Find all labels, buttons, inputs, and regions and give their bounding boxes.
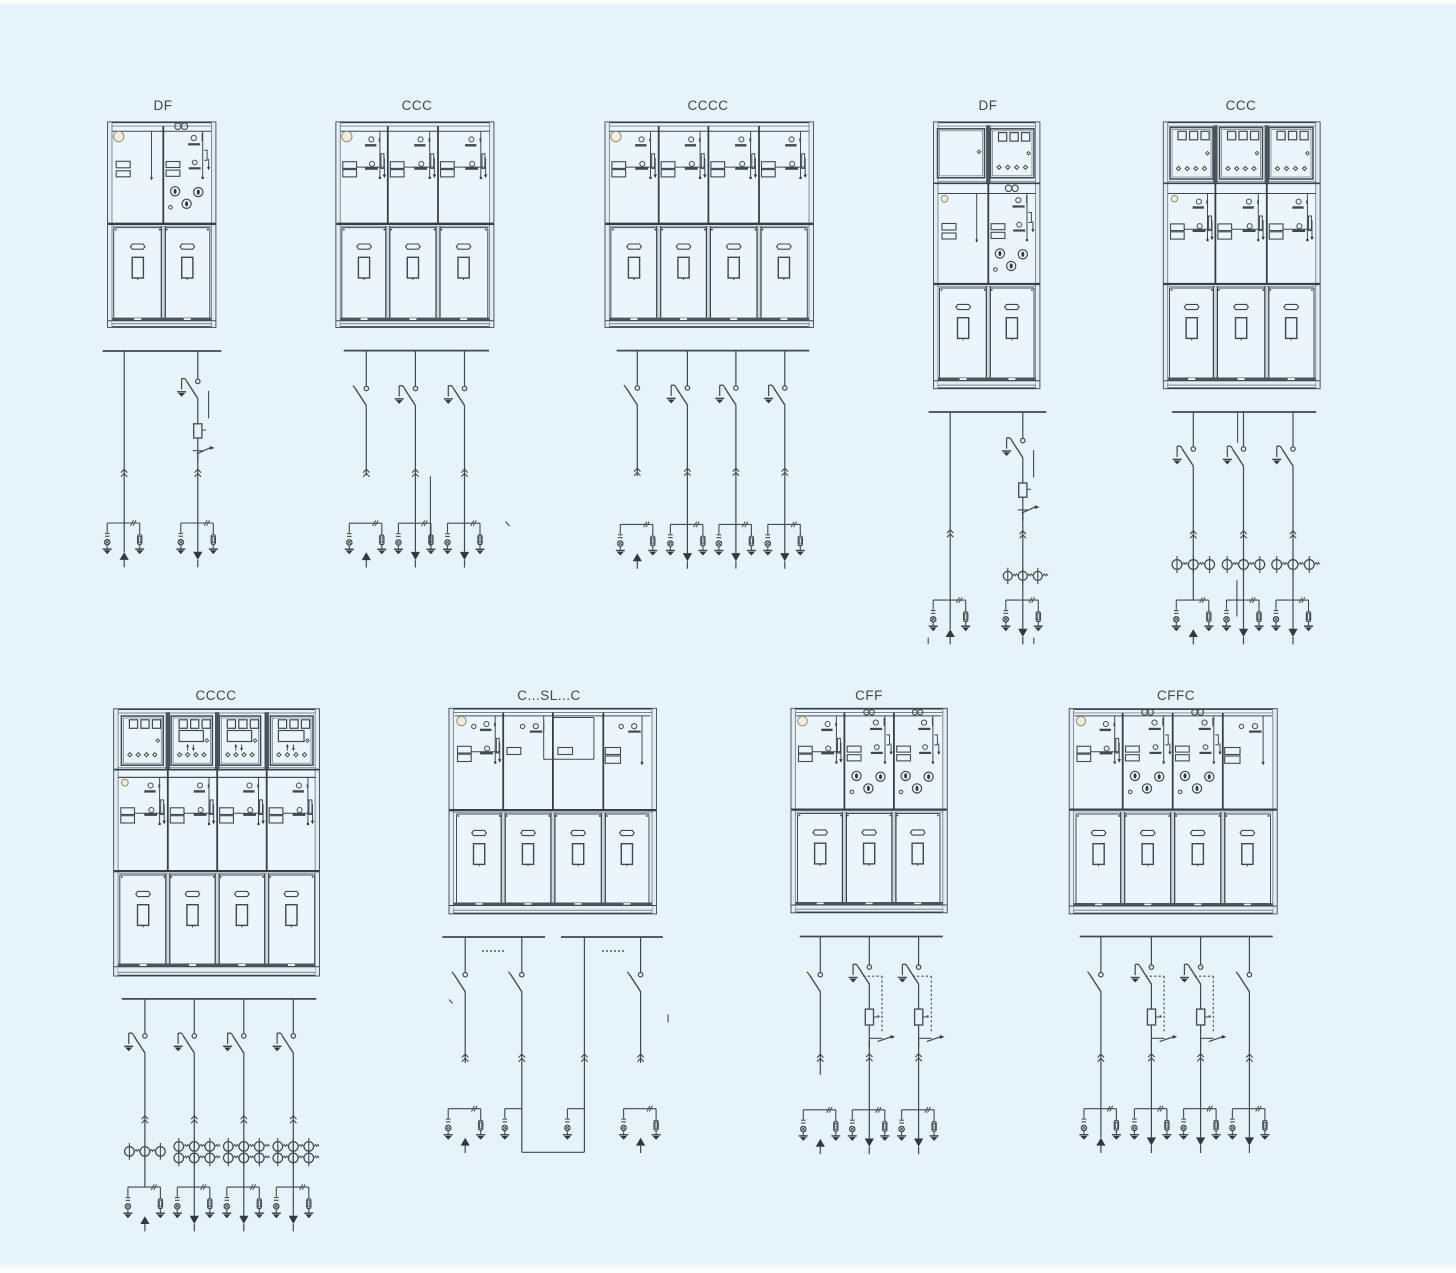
svg-text:DF: DF (979, 98, 998, 113)
svg-text:CCCC: CCCC (196, 688, 237, 703)
svg-text:CFF: CFF (855, 688, 883, 703)
svg-text:CFFC: CFFC (1157, 688, 1195, 703)
svg-text:CCC: CCC (1226, 98, 1257, 113)
svg-text:C...SL...C: C...SL...C (517, 688, 581, 703)
svg-text:CCC: CCC (402, 98, 433, 113)
svg-text:DF: DF (154, 98, 173, 113)
svg-text:CCCC: CCCC (688, 98, 729, 113)
